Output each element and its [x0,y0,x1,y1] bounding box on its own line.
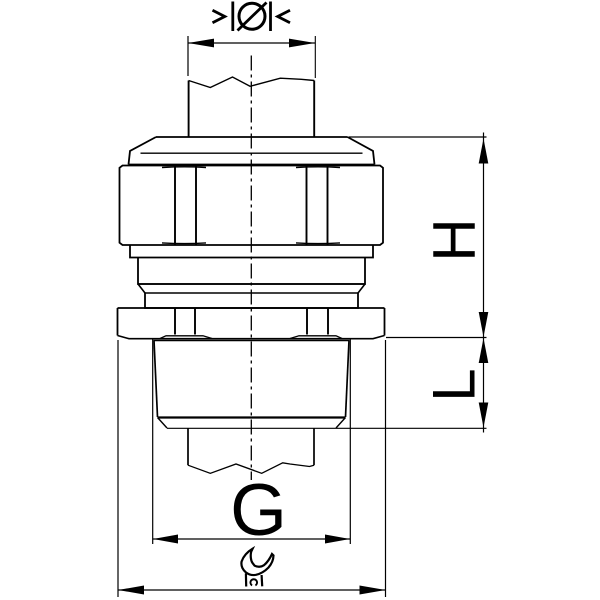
svg-text:L: L [421,368,488,401]
svg-text:H: H [421,218,488,261]
